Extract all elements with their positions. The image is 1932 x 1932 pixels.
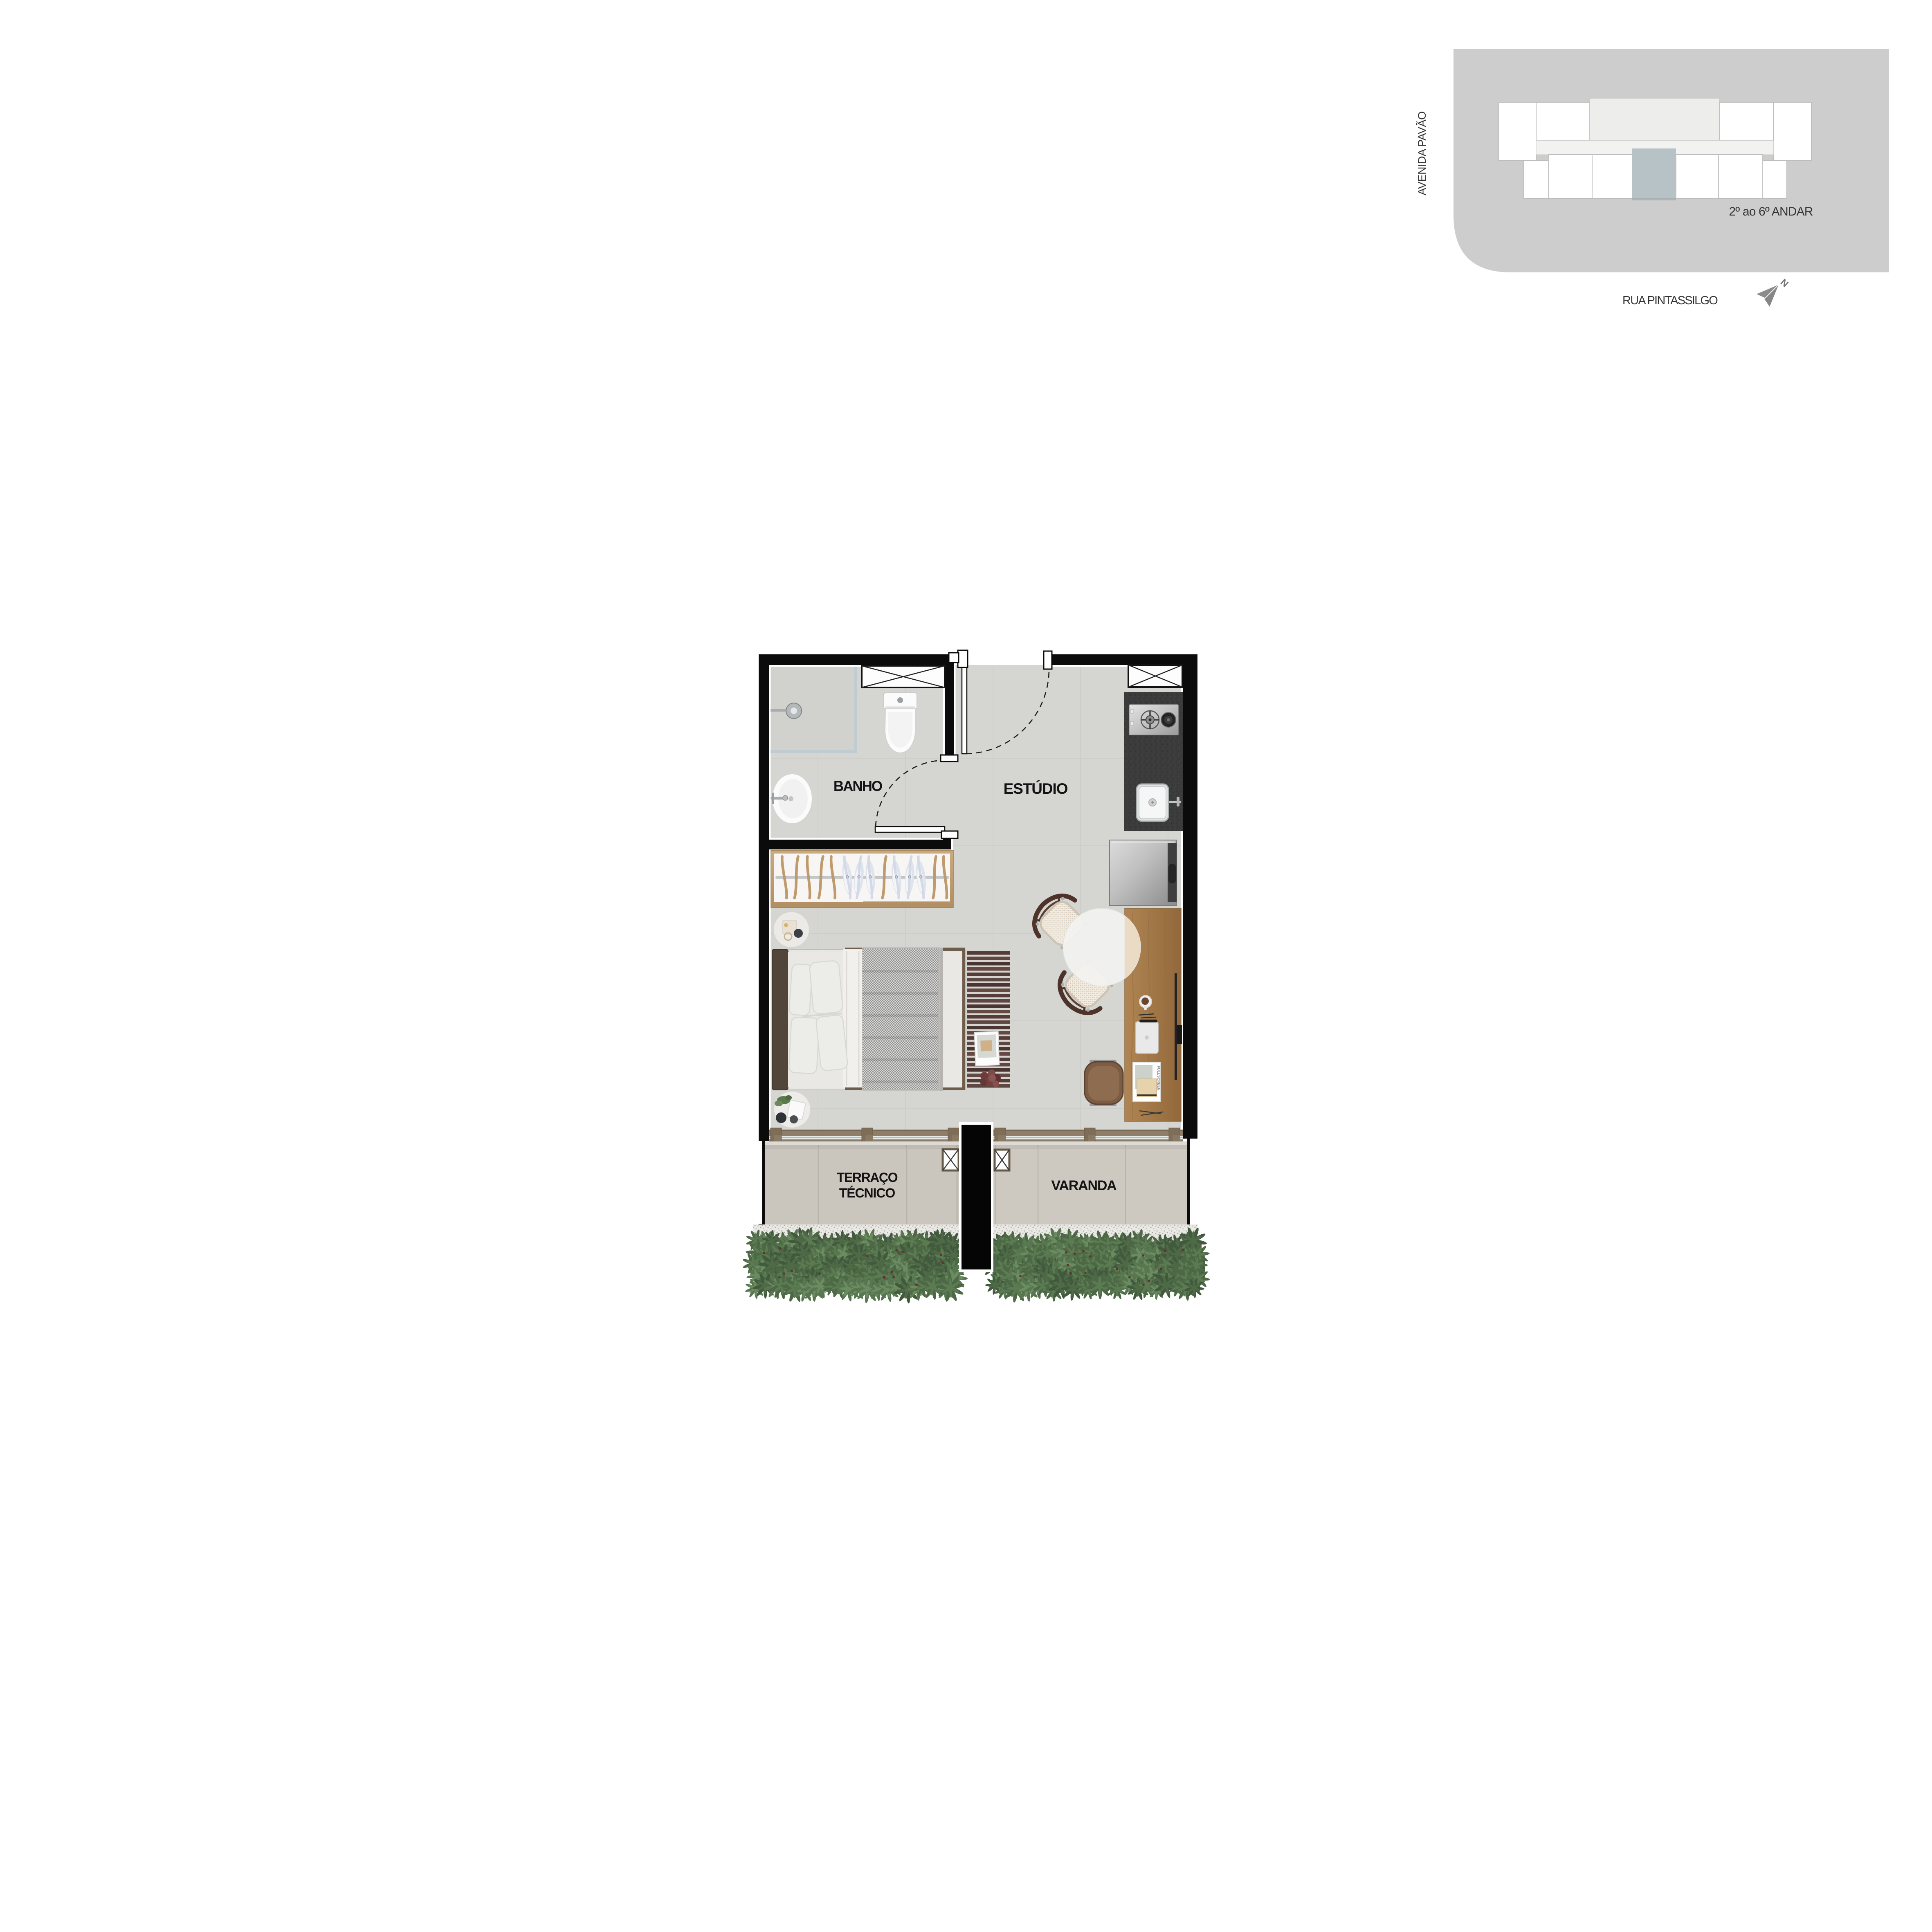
svg-text:2º ao 6º ANDAR: 2º ao 6º ANDAR	[1729, 205, 1813, 218]
svg-text:TÉCNICO: TÉCNICO	[839, 1186, 895, 1200]
svg-text:AVENIDA PAVÃO: AVENIDA PAVÃO	[1415, 111, 1428, 195]
svg-text:BANHO: BANHO	[833, 778, 882, 794]
svg-text:FULLSCREEN: FULLSCREEN	[1157, 1066, 1161, 1091]
svg-text:N: N	[1779, 277, 1790, 290]
svg-text:RUA PINTASSILGO: RUA PINTASSILGO	[1622, 294, 1718, 307]
svg-text:ESTÚDIO: ESTÚDIO	[1004, 780, 1068, 797]
svg-text:VARANDA: VARANDA	[1051, 1178, 1117, 1193]
svg-text:TERRAÇO: TERRAÇO	[837, 1170, 898, 1185]
